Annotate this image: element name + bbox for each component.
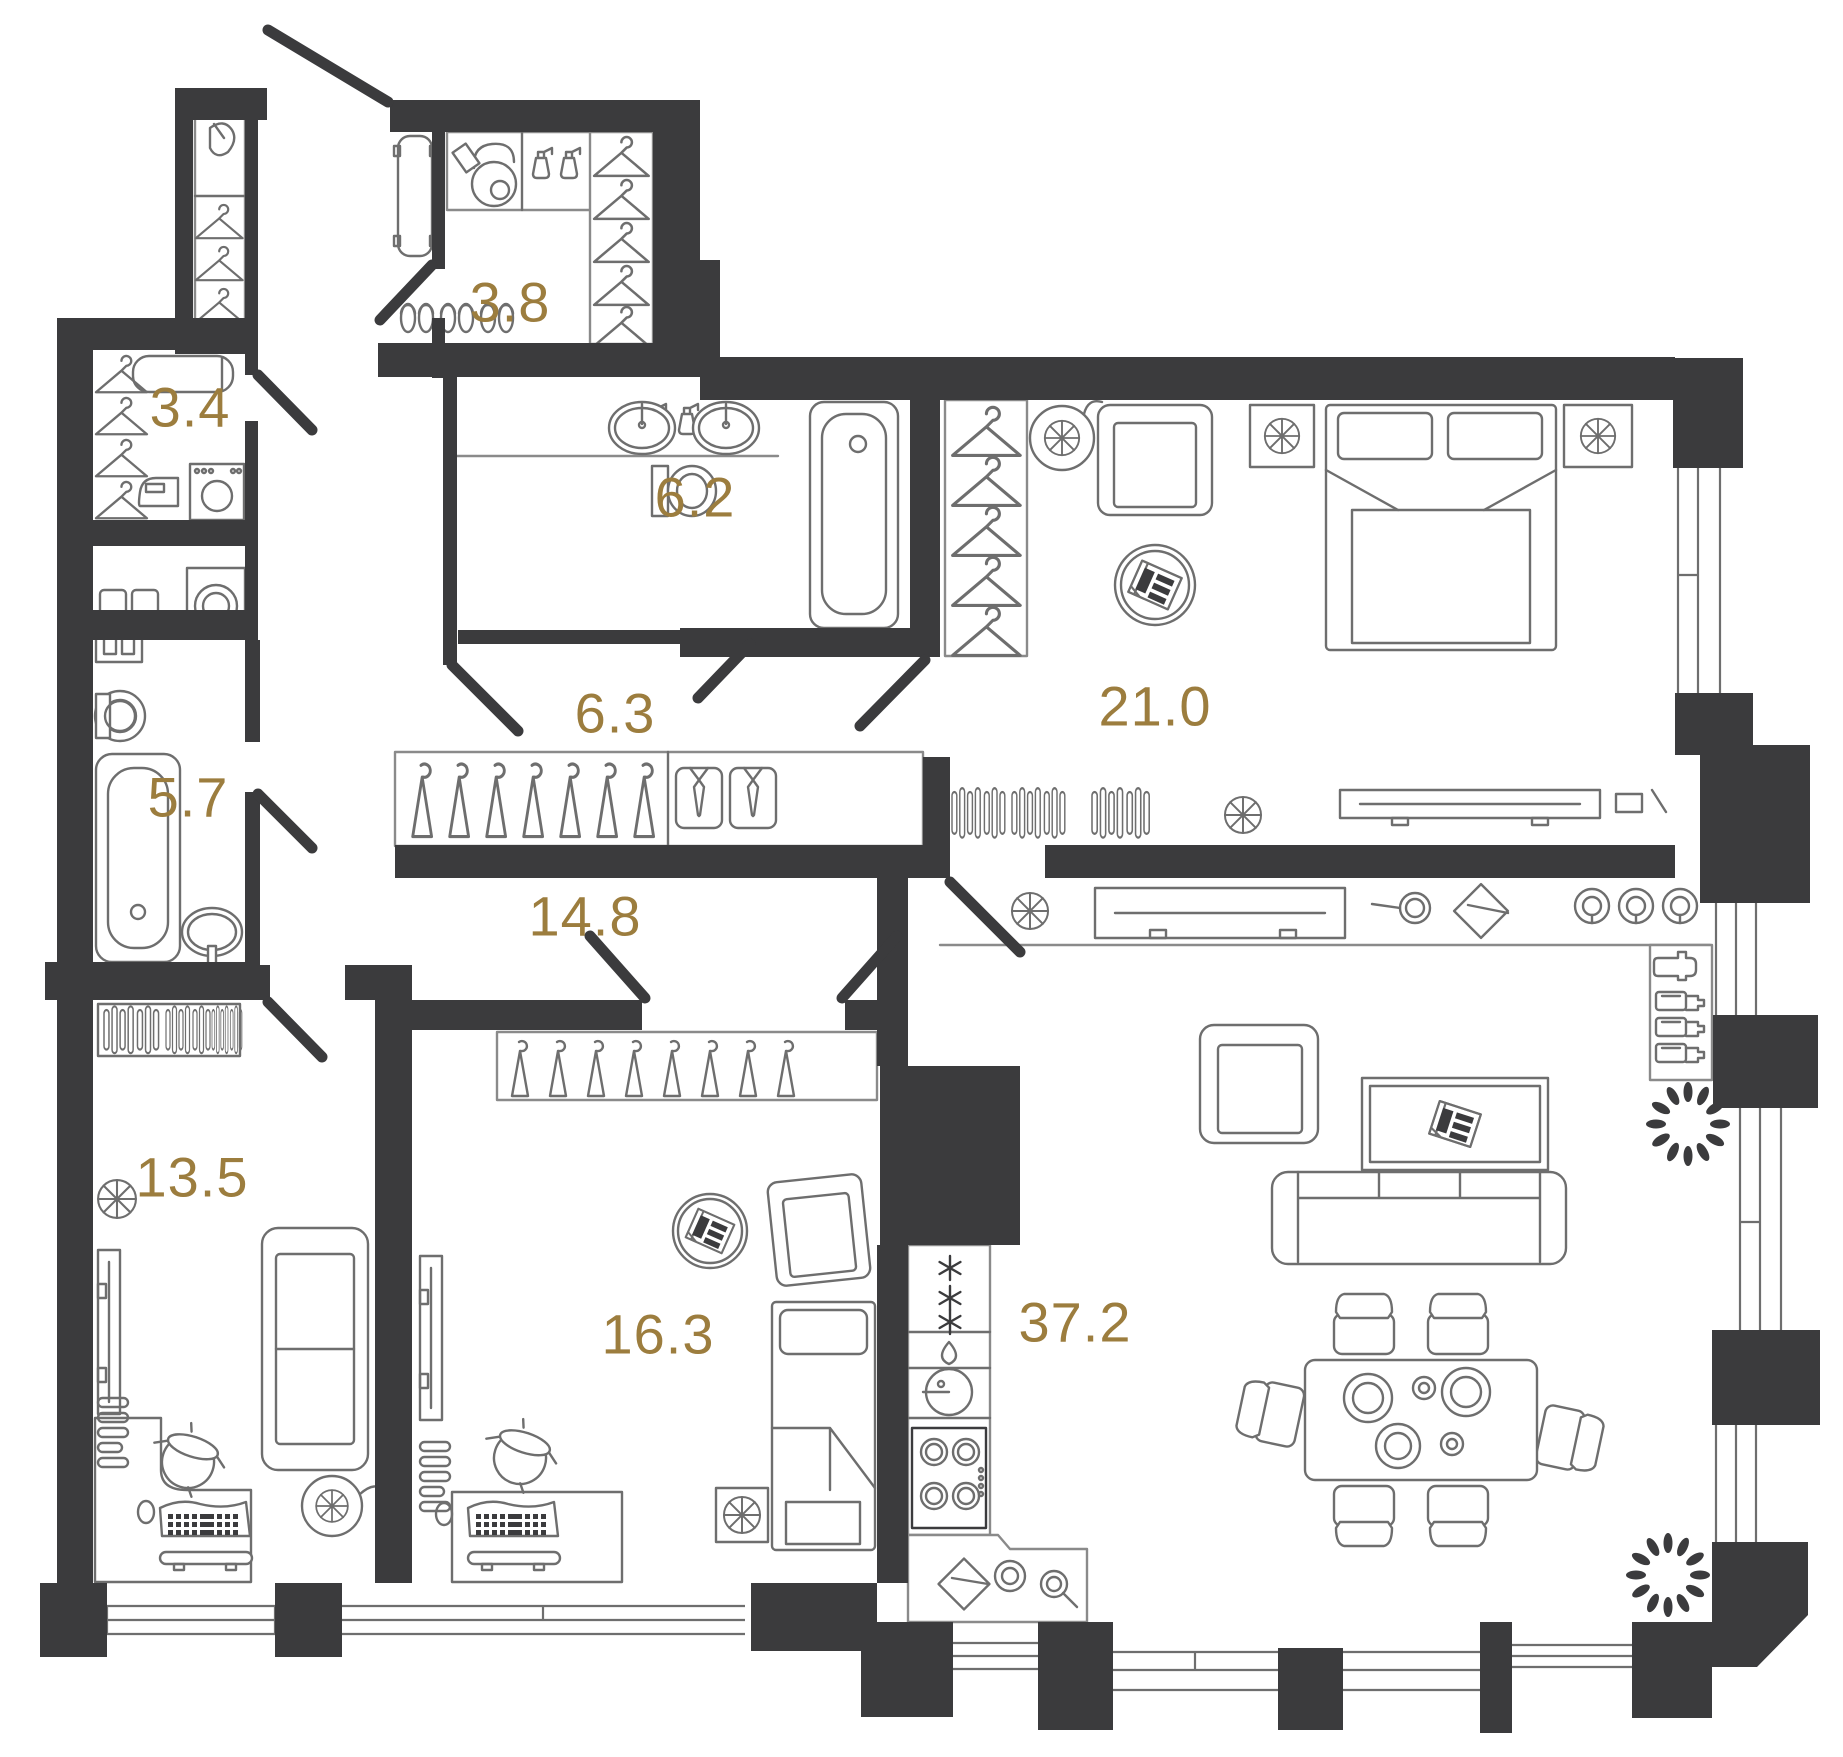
area-label-13-5: 13.5 bbox=[136, 1145, 249, 1210]
nightstand-right bbox=[1564, 405, 1632, 467]
armchair-icon bbox=[767, 1173, 871, 1286]
living-kitchen-furniture bbox=[888, 884, 1730, 1622]
toilet-icon bbox=[95, 691, 145, 741]
tv-console bbox=[1340, 790, 1600, 825]
iron-icon bbox=[139, 478, 178, 506]
kettle-icon bbox=[474, 1410, 566, 1499]
plant-icon bbox=[1626, 1533, 1710, 1617]
tv-icon bbox=[98, 1250, 120, 1414]
nightstand-left bbox=[1250, 405, 1314, 467]
closet-hangers bbox=[945, 400, 1027, 656]
desk bbox=[95, 1414, 252, 1582]
floor-plan: 3.8 3.4 6.2 6.3 21.0 5.7 14.8 13.5 16.3 … bbox=[0, 0, 1843, 1757]
sofa-icon bbox=[1272, 1172, 1566, 1264]
window bbox=[107, 1606, 275, 1634]
floor-plan-drawing bbox=[0, 0, 1843, 1757]
fan-cord-icon bbox=[302, 1476, 384, 1536]
area-label-6-2: 6.2 bbox=[655, 465, 736, 530]
hob-icon bbox=[912, 1428, 986, 1528]
door-13-5 bbox=[268, 1002, 322, 1057]
room-13-5-furniture bbox=[95, 1004, 384, 1582]
bedroom-furniture bbox=[945, 400, 1666, 838]
window bbox=[342, 1606, 745, 1634]
shirt-tie-icon bbox=[730, 768, 776, 828]
bench bbox=[394, 136, 436, 256]
area-label-14-8: 14.8 bbox=[529, 884, 642, 949]
door-3-4 bbox=[258, 375, 312, 430]
board-icon bbox=[1454, 884, 1508, 938]
entry-closet-cabinet bbox=[195, 107, 245, 327]
fan-box-icon bbox=[716, 1488, 768, 1542]
area-label-37-2: 37.2 bbox=[1019, 1290, 1132, 1355]
pan-icon bbox=[1372, 893, 1430, 923]
window bbox=[1113, 1652, 1278, 1690]
sink-icon bbox=[182, 908, 242, 968]
double-bed-icon bbox=[1326, 405, 1556, 650]
door-5-7 bbox=[258, 794, 312, 848]
double-sink bbox=[457, 402, 778, 456]
valve-icon bbox=[98, 1180, 136, 1218]
door-bedroom bbox=[860, 660, 925, 726]
armchair-icon bbox=[1200, 1025, 1318, 1143]
keyboard-icon bbox=[160, 1502, 250, 1536]
single-bed-icon bbox=[772, 1302, 875, 1550]
bedroom-wall-band bbox=[952, 788, 1666, 837]
radiator-small bbox=[420, 1442, 450, 1511]
bathtub-icon bbox=[810, 402, 898, 628]
area-label-21-0: 21.0 bbox=[1099, 674, 1212, 739]
window bbox=[953, 1643, 1038, 1669]
door-living bbox=[950, 882, 1020, 952]
dining-set bbox=[1234, 1294, 1605, 1546]
radiator-top bbox=[98, 1004, 242, 1056]
kitchen-column bbox=[908, 1245, 990, 1535]
area-label-3-8: 3.8 bbox=[470, 270, 551, 335]
window bbox=[1343, 1652, 1480, 1690]
wardrobe-hangers bbox=[497, 1032, 877, 1100]
area-label-5-7: 5.7 bbox=[148, 765, 229, 830]
washing-machine-icon bbox=[190, 464, 244, 520]
window bbox=[1716, 898, 1756, 1015]
entry-door bbox=[268, 30, 388, 102]
slippers-icon bbox=[441, 304, 473, 332]
newspaper-table bbox=[1115, 545, 1195, 625]
window bbox=[1740, 1108, 1781, 1330]
newspaper-table bbox=[673, 1194, 747, 1268]
door-corridor bbox=[452, 665, 518, 731]
armchair-icon bbox=[1098, 405, 1212, 515]
window bbox=[1716, 1425, 1756, 1543]
window bbox=[1512, 1645, 1632, 1667]
kitchen-bottom-counter bbox=[908, 1535, 1087, 1622]
area-label-16-3: 16.3 bbox=[602, 1302, 715, 1367]
bar-counter bbox=[1650, 945, 1712, 1080]
window bbox=[1678, 468, 1720, 693]
area-label-6-3: 6.3 bbox=[575, 681, 656, 746]
coffee-table bbox=[1362, 1078, 1548, 1170]
kitchen-top-counter bbox=[940, 884, 1710, 945]
tv-icon bbox=[420, 1256, 442, 1420]
shirt-tie-icon bbox=[676, 768, 722, 828]
slippers-icon bbox=[401, 304, 433, 332]
fan-cord-icon bbox=[1030, 401, 1102, 470]
burner-knobs bbox=[1575, 889, 1697, 923]
area-label-3-4: 3.4 bbox=[150, 375, 231, 440]
corridor-wardrobe bbox=[395, 752, 923, 846]
sofa-icon bbox=[262, 1228, 368, 1470]
keyboard-icon bbox=[468, 1502, 558, 1536]
desk bbox=[436, 1410, 622, 1582]
